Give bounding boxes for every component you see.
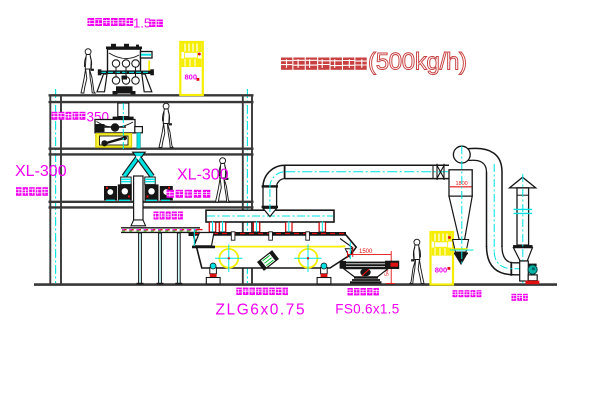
svg-text:800: 800 [435, 266, 448, 275]
svg-text:1500: 1500 [359, 249, 373, 255]
svg-text:800: 800 [185, 73, 198, 82]
svg-text:1.5: 1.5 [133, 16, 151, 31]
svg-text:XL-300: XL-300 [177, 167, 229, 184]
svg-text:FS0.6x1.5: FS0.6x1.5 [335, 302, 399, 317]
svg-text:XL-300: XL-300 [15, 163, 67, 180]
svg-text:(500kg/h): (500kg/h) [368, 49, 467, 76]
svg-text:ZLG6x0.75: ZLG6x0.75 [216, 302, 307, 319]
